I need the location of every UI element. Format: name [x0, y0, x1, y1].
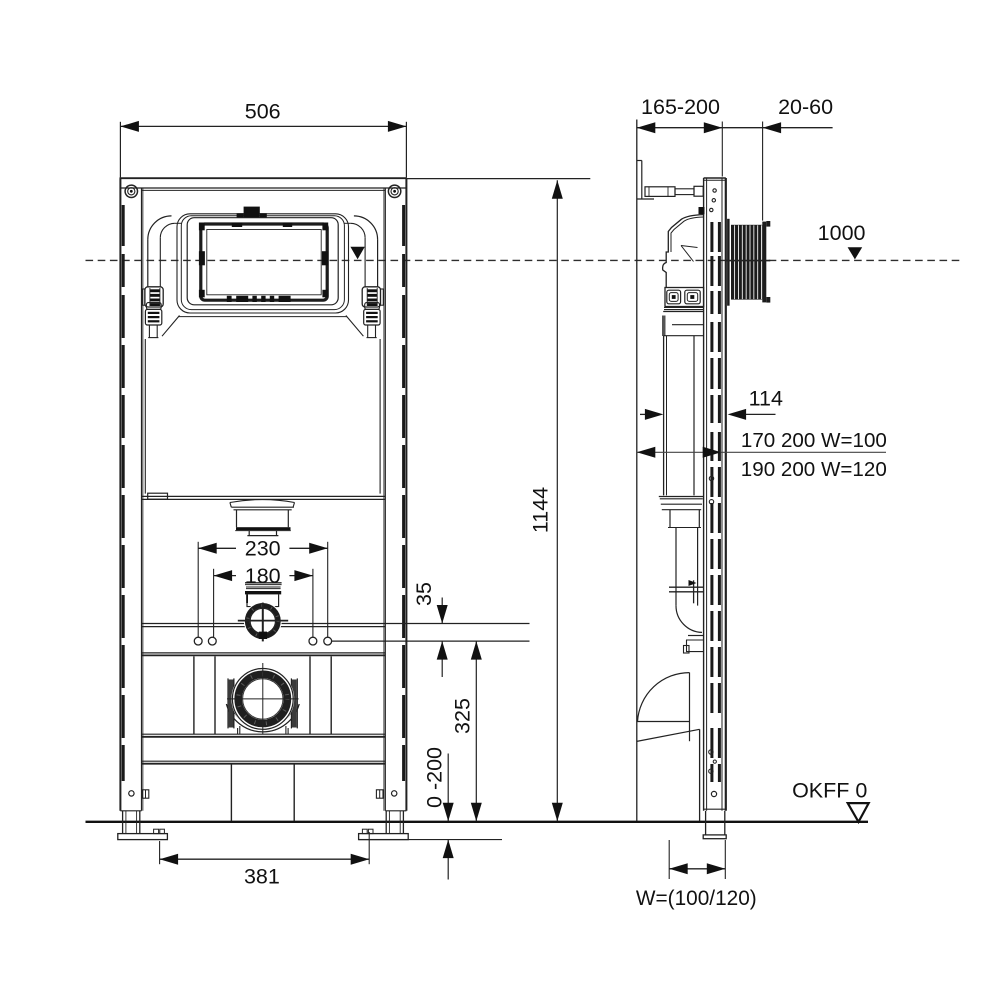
svg-text:325: 325 [451, 698, 475, 734]
svg-text:20-60: 20-60 [778, 95, 833, 119]
svg-text:180: 180 [245, 564, 281, 588]
svg-text:230: 230 [245, 537, 281, 561]
svg-text:W=(100/120): W=(100/120) [636, 887, 757, 910]
svg-text:1000: 1000 [818, 221, 866, 245]
svg-text:0 -200: 0 -200 [423, 747, 447, 808]
svg-text:OKFF 0: OKFF 0 [792, 778, 867, 802]
svg-text:114: 114 [749, 386, 783, 410]
svg-text:381: 381 [244, 865, 280, 889]
svg-text:165-200: 165-200 [641, 95, 720, 119]
svg-text:170 200 W=100: 170 200 W=100 [741, 429, 887, 452]
svg-text:506: 506 [245, 100, 281, 124]
svg-text:1144: 1144 [528, 487, 552, 533]
svg-text:190 200 W=120: 190 200 W=120 [741, 458, 887, 481]
svg-text:35: 35 [412, 582, 436, 606]
